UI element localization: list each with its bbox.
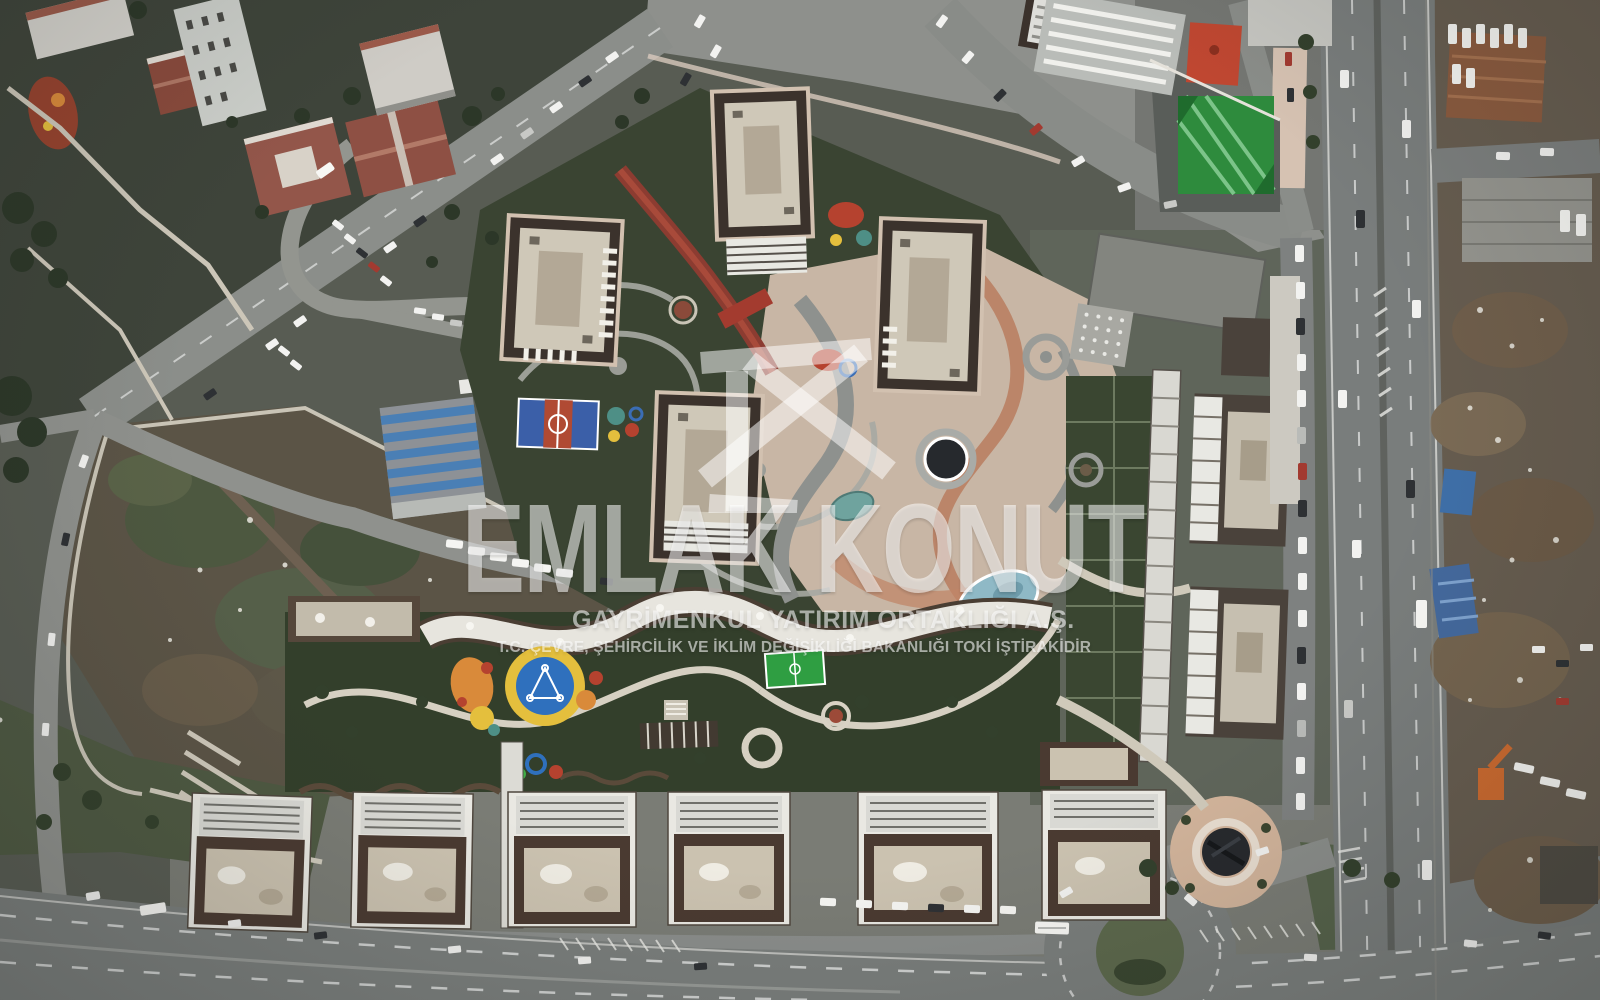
tower-1 <box>499 213 625 367</box>
pergola <box>640 721 719 750</box>
watermark-subtitle: GAYRİMENKUL YATIRIM ORTAKLIĞI A.Ş. <box>572 607 1075 635</box>
watermark-tagline: T.C. ÇEVRE, ŞEHİRCİLİK VE İKLİM DEĞİŞİKL… <box>497 639 1091 658</box>
basketball-court <box>517 399 599 450</box>
aerial-photo: EMLAK KONUT GAYRİMENKUL YATIRIM ORTAKLIĞ… <box>0 0 1600 1000</box>
red-court <box>1186 22 1242 85</box>
east-building-2 <box>1185 586 1288 739</box>
row-building-nw <box>288 596 420 642</box>
stairs <box>664 700 688 720</box>
watermark-title: EMLAK KONUT <box>462 486 1144 612</box>
kindergarten <box>1040 742 1138 786</box>
